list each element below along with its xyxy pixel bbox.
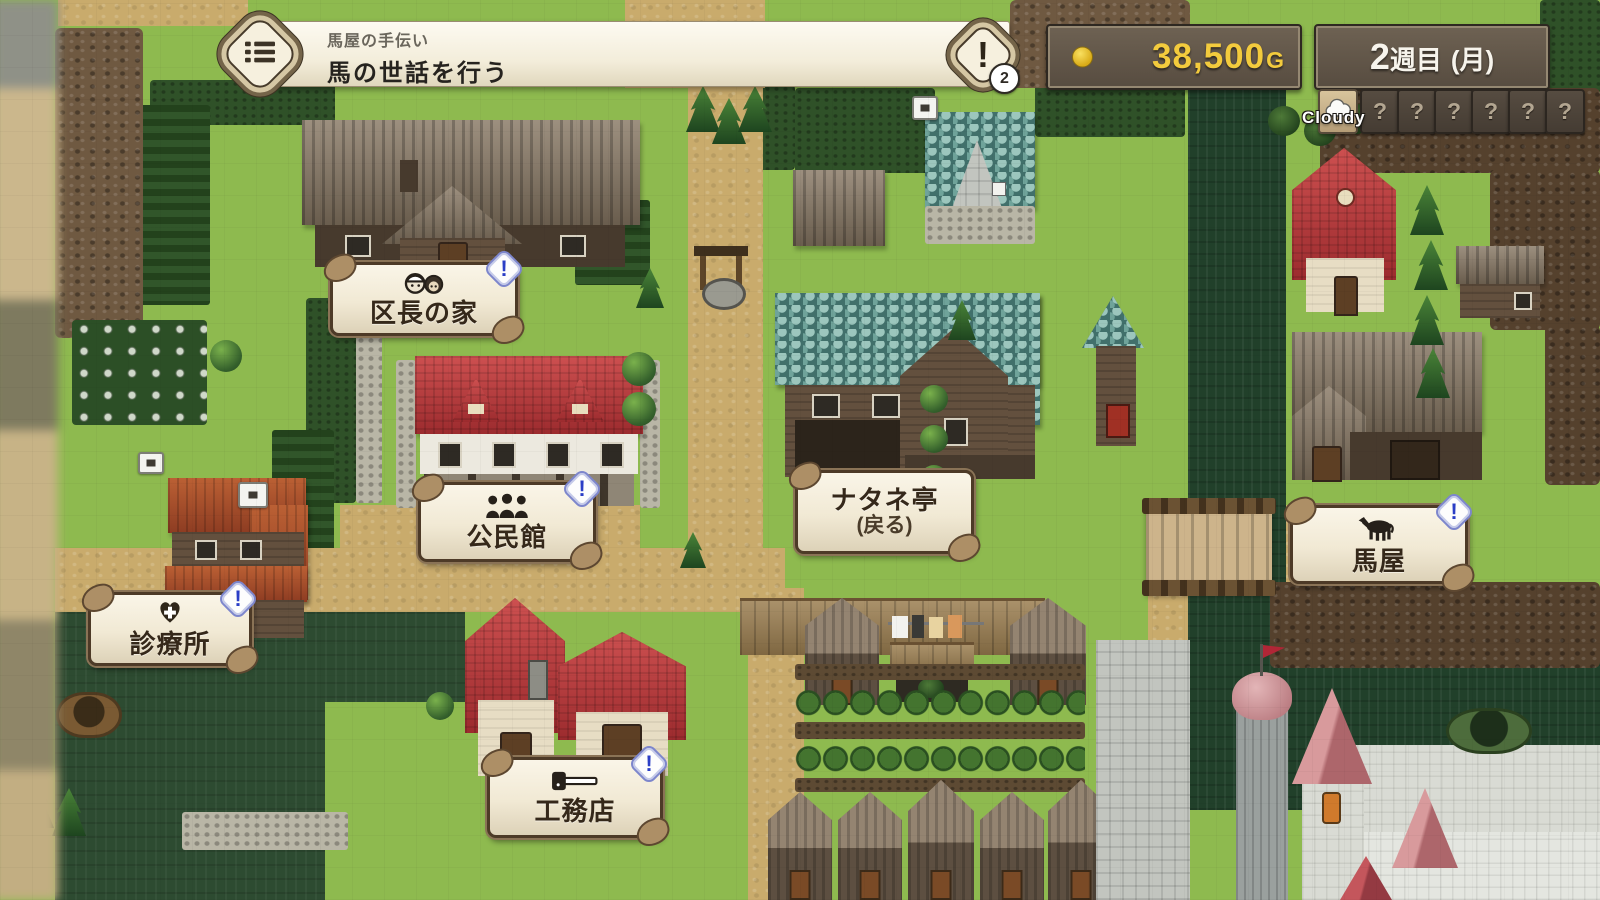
castle-pier-wall: [1096, 640, 1190, 900]
bridge-rail: [1142, 580, 1276, 596]
terrain-stone-path: [356, 318, 382, 503]
map-label-community-hall[interactable]: ! 公民館: [418, 482, 596, 562]
event-exclamation-icon: !: [485, 250, 523, 288]
roof-sign-marker: [238, 482, 268, 508]
game-screen: ! 区長の家 ! 公民館 !: [0, 0, 1600, 900]
window: [195, 540, 217, 560]
barn-door: [1390, 440, 1440, 480]
farm-shed: [838, 792, 902, 900]
soil-row: [795, 722, 1085, 739]
building-hall-roof: [415, 356, 643, 434]
terrain-cobble-patch: [182, 812, 348, 850]
event-exclamation-icon: !: [1435, 493, 1473, 531]
map-label-text: 工務店: [534, 798, 615, 825]
bush: [1340, 104, 1372, 134]
map-label-horse-stable[interactable]: ! 馬屋: [1290, 505, 1468, 584]
window: [492, 442, 516, 468]
quest-banner[interactable]: 馬屋の手伝い 馬の世話を行う: [252, 21, 1010, 87]
map-label-text: 区長の家: [370, 300, 478, 327]
farm-shed: [980, 792, 1044, 900]
pine-tree: [1414, 240, 1448, 290]
window: [872, 394, 900, 418]
map-label-text: ナタネ亭: [830, 487, 938, 514]
round-tree: [920, 385, 948, 413]
building-chapel-base: [925, 206, 1035, 244]
village-map-canvas: [0, 0, 1600, 900]
building-chief-house-roof: [470, 120, 640, 225]
castle-tower: [1236, 700, 1288, 900]
quest-count-badge: 2: [989, 63, 1020, 94]
chapel-lantern: [992, 182, 1006, 196]
castle-wall: [1345, 745, 1600, 837]
orchard-row: [795, 740, 1085, 776]
quest-log-button[interactable]: [220, 14, 300, 94]
map-marker: [138, 452, 164, 474]
event-exclamation-icon: !: [563, 470, 601, 508]
flag-pole: [1260, 644, 1263, 676]
map-label-text: 公民館: [466, 524, 547, 551]
map-label-clinic[interactable]: ! 診療所: [88, 592, 252, 666]
castle-lamp: [1322, 792, 1341, 824]
gable-round-window: [1336, 188, 1355, 207]
map-marker: [912, 96, 938, 120]
terrain-cliff: [1010, 0, 1190, 88]
three-people-icon: [482, 492, 532, 523]
bush: [1304, 116, 1336, 146]
terrain-path: [688, 88, 763, 550]
terrain-crop-patch: [72, 320, 207, 425]
chimney: [528, 660, 548, 700]
door: [1312, 446, 1342, 482]
quest-alert-button[interactable]: ! 2: [950, 22, 1016, 88]
dormer-window: [572, 404, 588, 414]
round-tree: [622, 352, 656, 386]
horse-icon: [1355, 514, 1403, 547]
green-boat: [1446, 708, 1532, 754]
quest-objective: 馬の世話を行う: [327, 53, 509, 88]
dormer-window: [468, 404, 484, 414]
round-tree: [210, 340, 242, 372]
building-log-cabin-roof: [1456, 246, 1544, 284]
map-label-subtext: (戻る): [857, 514, 913, 537]
shrine-door: [1106, 404, 1130, 438]
building-cabin-roof: [793, 170, 885, 246]
quest-list-icon: [245, 40, 275, 69]
laundry: [912, 615, 924, 638]
orchard-row: [795, 684, 1085, 720]
round-tree: [920, 425, 948, 453]
two-people-icon: [402, 270, 446, 299]
laundry: [929, 617, 943, 638]
event-exclamation-icon: !: [630, 745, 668, 783]
window: [812, 394, 840, 418]
map-edge-blur: [0, 0, 58, 900]
quest-title: 馬屋の手伝い: [327, 27, 509, 51]
well-roof: [694, 246, 748, 256]
building-shrine-roof: [1082, 296, 1144, 348]
bush: [1268, 106, 1300, 136]
window: [600, 442, 624, 468]
castle-tower-dome: [1232, 672, 1292, 720]
well-basin: [702, 278, 746, 310]
laundry: [892, 616, 908, 638]
pine-tree: [1410, 185, 1444, 235]
map-label-text: 診療所: [129, 631, 210, 658]
farm-shed: [908, 780, 974, 900]
window: [438, 442, 462, 468]
terrain-cliff: [1270, 582, 1600, 668]
terrain-hedge: [1540, 0, 1600, 95]
map-label-text: 馬屋: [1352, 548, 1406, 575]
building-clinic-wall: [172, 532, 304, 568]
round-tree: [622, 392, 656, 426]
window: [240, 540, 262, 560]
event-exclamation-icon: !: [219, 580, 257, 618]
exclamation-icon: !: [977, 37, 989, 73]
window: [1514, 292, 1532, 310]
rowboat: [56, 692, 122, 738]
bridge-rail: [1142, 498, 1276, 514]
window: [546, 442, 570, 468]
pine-tree: [1410, 295, 1444, 345]
terrain-cliff: [55, 28, 143, 338]
map-label-natane-inn-return[interactable]: ナタネ亭 (戻る): [795, 470, 974, 554]
map-label-workshop[interactable]: ! 工務店: [487, 757, 663, 838]
chimney: [400, 160, 418, 192]
map-label-chief-house[interactable]: ! 区長の家: [330, 262, 518, 336]
door: [1334, 276, 1358, 316]
terrain-cliff: [1545, 325, 1600, 485]
heart-cross-icon: [155, 599, 185, 630]
round-tree: [426, 692, 454, 720]
hammer-icon: [549, 770, 601, 797]
soil-row: [795, 664, 1085, 680]
window: [560, 235, 586, 257]
terrain-pond: [325, 612, 465, 702]
laundry: [948, 615, 962, 638]
terrain-hedge: [1035, 82, 1185, 137]
